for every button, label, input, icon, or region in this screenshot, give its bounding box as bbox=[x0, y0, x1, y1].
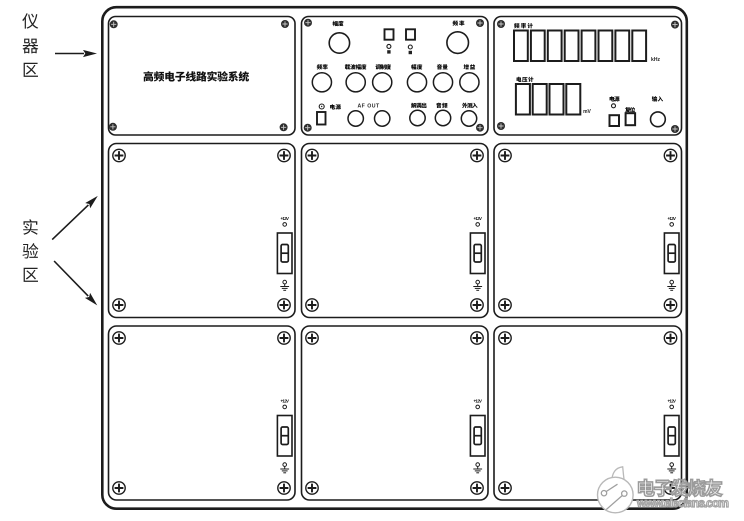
svg-text:kHz: kHz bbox=[651, 57, 660, 63]
svg-text:AF OUT: AF OUT bbox=[357, 104, 380, 110]
svg-text:mV: mV bbox=[583, 109, 591, 115]
svg-text:www.elecfans.com: www.elecfans.com bbox=[636, 496, 729, 510]
